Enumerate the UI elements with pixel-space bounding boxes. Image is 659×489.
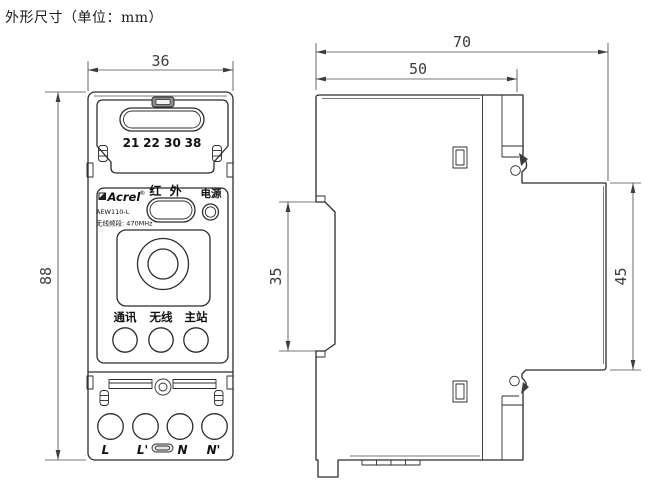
front-view: 36 88 21 22 bbox=[37, 52, 233, 460]
front-body-outline bbox=[88, 92, 233, 460]
terminal-no-22: 22 bbox=[143, 136, 160, 150]
arrow-left bbox=[316, 77, 326, 82]
arrow-up bbox=[286, 202, 291, 212]
terminal-label-Lp: L' bbox=[137, 443, 148, 457]
arrow-right bbox=[507, 77, 517, 82]
side-depth-dimension-total: 70 bbox=[316, 33, 608, 181]
brand-reg-mark: ® bbox=[139, 189, 146, 197]
rail-section bbox=[87, 372, 233, 406]
hook-claw-bottom bbox=[521, 382, 529, 394]
drawing-svg: 36 88 21 22 bbox=[0, 0, 659, 489]
terminal-label-N: N bbox=[177, 443, 187, 457]
side-rear-height-value: 45 bbox=[612, 267, 630, 285]
dimension-drawing: 外形尺寸（单位：mm） 36 88 bbox=[0, 0, 659, 489]
frequency-text: 无线频段: 470MHz bbox=[96, 219, 153, 228]
hook-pin-bottom bbox=[510, 376, 520, 386]
side-profile-outline bbox=[316, 95, 606, 477]
bottom-ticks bbox=[362, 460, 420, 465]
lower-latches bbox=[100, 391, 223, 406]
rail-hook-bottom bbox=[502, 376, 529, 460]
body-edge-tab-right-bottom bbox=[227, 376, 233, 389]
arrow-right bbox=[598, 50, 608, 55]
arrow-left bbox=[316, 50, 326, 55]
acrel-logo: Acrel ® bbox=[99, 189, 146, 204]
rail-slot-hook-upper bbox=[316, 196, 325, 202]
terminal-no-21: 21 bbox=[123, 136, 140, 150]
status-led-row: 通讯 无线 主站 bbox=[113, 310, 208, 352]
side-rail-slot-dimension: 35 bbox=[267, 202, 318, 351]
side-rear-height-dimension: 45 bbox=[610, 183, 641, 370]
rail-bar-left bbox=[109, 380, 152, 389]
comm-led-label: 通讯 bbox=[114, 310, 137, 324]
terminal-cover: 21 22 30 38 bbox=[87, 97, 233, 177]
arrow-right bbox=[223, 68, 233, 73]
side-total-depth-value: 70 bbox=[453, 33, 471, 51]
comm-led bbox=[113, 328, 137, 352]
wireless-led bbox=[149, 328, 173, 352]
master-led bbox=[184, 328, 208, 352]
arrow-up bbox=[631, 183, 636, 193]
master-led-label: 主站 bbox=[185, 310, 208, 324]
sensor-ring bbox=[138, 239, 189, 290]
infrared-window-inner bbox=[150, 201, 192, 219]
terminal-label-Np: N' bbox=[207, 443, 221, 457]
terminal-label-L: L bbox=[102, 443, 110, 457]
front-height-dimension: 88 bbox=[37, 92, 86, 460]
center-screw bbox=[155, 379, 171, 395]
terminal-no-38: 38 bbox=[185, 136, 202, 150]
infrared-window bbox=[147, 198, 195, 222]
terminal-hole-Lp bbox=[133, 414, 159, 440]
side-profile-details bbox=[316, 95, 604, 465]
terminal-no-30: 30 bbox=[164, 136, 181, 150]
hook-pin-top bbox=[511, 166, 521, 176]
sensor-pad bbox=[117, 230, 210, 306]
terminal-hole-Np bbox=[202, 414, 228, 440]
side-body-depth-value: 50 bbox=[409, 60, 427, 78]
power-label: 电源 bbox=[201, 187, 222, 200]
body-edge-tab-right-top bbox=[227, 163, 233, 177]
side-depth-dimension-body: 50 bbox=[316, 60, 517, 92]
side-view: 70 50 35 bbox=[267, 33, 641, 477]
arrow-down bbox=[286, 341, 291, 351]
front-height-value: 88 bbox=[37, 267, 55, 285]
terminal-block: L L' N N' bbox=[98, 414, 228, 457]
cover-side-latches bbox=[99, 146, 222, 162]
sensor-lens bbox=[148, 249, 178, 279]
infrared-label: 红 外 bbox=[149, 183, 183, 198]
rail-slot-hook-lower bbox=[316, 351, 325, 357]
front-panel: Acrel ® AEW110-L 无线频段: 470MHz 红 外 电源 通讯 … bbox=[96, 183, 228, 363]
cover-latch-inner bbox=[156, 100, 170, 105]
brand-text: Acrel bbox=[107, 190, 142, 204]
vent-slot-top-inner bbox=[456, 150, 464, 165]
center-screw-inner bbox=[159, 383, 167, 391]
arrow-down bbox=[631, 360, 636, 370]
cover-window-slot-inner bbox=[124, 111, 201, 128]
arrow-left bbox=[88, 68, 98, 73]
vent-slot-bottom-inner bbox=[456, 384, 464, 399]
rail-bar-right bbox=[173, 380, 216, 389]
terminal-hole-N bbox=[167, 414, 193, 440]
wireless-led-label: 无线 bbox=[149, 310, 173, 324]
side-rail-slot-value: 35 bbox=[267, 267, 285, 285]
arrow-down bbox=[56, 450, 61, 460]
terminal-hole-L bbox=[98, 414, 124, 440]
power-led-inner bbox=[205, 207, 215, 217]
front-width-value: 36 bbox=[151, 52, 169, 70]
arrow-up bbox=[56, 92, 61, 102]
model-text: AEW110-L bbox=[96, 208, 130, 216]
rail-hook-top bbox=[502, 95, 528, 175]
front-width-dimension: 36 bbox=[88, 52, 233, 91]
